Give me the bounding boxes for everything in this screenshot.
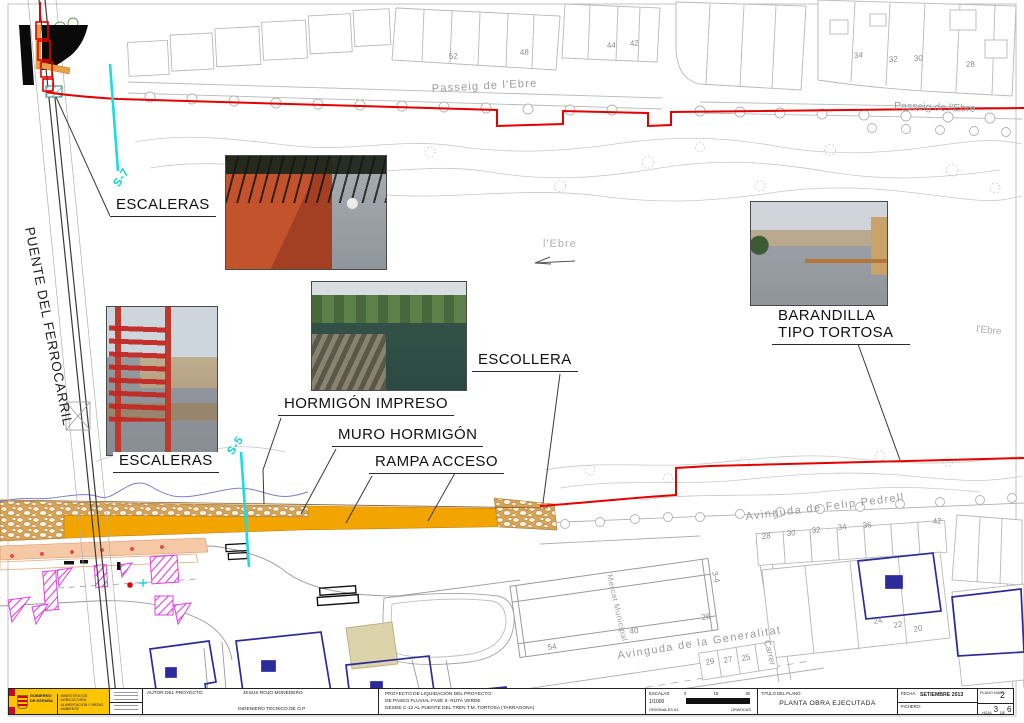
spain-flag-icon <box>9 689 15 714</box>
escala-value: 1/1000 <box>649 699 664 705</box>
callout-escaleras-left: ESCALERAS <box>113 452 219 473</box>
gobierno-logo: GOBIERNO DE ESPAÑA MINISTERIO DE AGRICUL… <box>9 689 109 714</box>
river-label-right: l'Ebre <box>976 324 1003 338</box>
photo-escaleras-top <box>225 155 387 270</box>
fichero-label: FICHERO: <box>901 704 921 709</box>
house-number: 52 <box>449 52 459 61</box>
photo-paseo-barandilla <box>750 201 888 306</box>
escalas-cell: ESCALAS: 1/1000 ORIGINALES A3 0 15 30 GR… <box>645 689 757 714</box>
cell-divider <box>110 702 142 703</box>
fecha-label: FECHA: <box>901 691 916 696</box>
house-number: 28 <box>761 531 771 541</box>
escalas-label: ESCALAS: <box>649 691 670 696</box>
title-block: GOBIERNO DE ESPAÑA MINISTERIO DE AGRICUL… <box>8 688 1014 715</box>
fecha-value: SETIEMBRE 2013 <box>920 692 963 698</box>
hoja-row: HOJA 3 DE 6 <box>978 704 1013 714</box>
spain-coat-of-arms-icon <box>17 695 28 709</box>
autor-title: INGENIERO TÉCNICO DE O.P. <box>238 707 306 712</box>
scale-tick: 15 <box>714 691 719 696</box>
buildings-top-right <box>676 0 1016 96</box>
fecha-cell: FECHA: SETIEMBRE 2013 FICHERO: <box>897 689 977 714</box>
house-number: 34 <box>837 522 847 532</box>
street-label-pedrell: Avinguda de Felip Pedrell <box>745 492 905 523</box>
house-number: 48 <box>520 48 530 57</box>
water-edge-contour <box>0 483 308 502</box>
house-number: 40 <box>629 626 640 636</box>
buildings-top-middle <box>392 4 660 70</box>
proyecto-line3: DESDE C-12 AL PUENTE DEL TREN T.M. TORTO… <box>385 705 645 712</box>
house-number: 28 <box>966 60 976 69</box>
callout-muro-hormigon: MURO HORMIGÓN <box>332 426 483 447</box>
fichero-row: FICHERO: <box>898 703 977 715</box>
buildings-top-left <box>126 9 391 77</box>
river-flow-arrow <box>535 257 575 264</box>
proyecto-line2: DE PASEO FLUVIAL FASE II- RUTA VERDE <box>385 698 645 705</box>
plano-cell: PLANO NÚM. 2 HOJA 3 DE 6 <box>977 689 1013 714</box>
plan-sheet: { "callouts": { "escaleras_top": "ESCALE… <box>0 0 1024 723</box>
river-label-center: l'Ebre <box>543 238 577 250</box>
house-number: 36 <box>862 520 872 530</box>
originales-label: ORIGINALES A3 <box>649 707 678 712</box>
house-number: 32 <box>811 525 821 535</box>
photo-escaleras-left <box>106 306 218 456</box>
callout-escollera: ESCOLLERA <box>472 351 578 372</box>
hoja-num: 3 <box>994 706 998 714</box>
fine-print-line <box>114 705 138 706</box>
autor-cell: AUTOR DEL PROYECTO: JESUS ROJO MONEDERO … <box>142 689 378 714</box>
house-number: 30 <box>914 54 924 63</box>
gobierno-text: GOBIERNO DE ESPAÑA <box>30 694 54 714</box>
house-number: 26 <box>701 612 712 622</box>
titulo-value: PLANTA OBRA EJECUTADA <box>758 700 897 707</box>
fecha-row: FECHA: SETIEMBRE 2013 <box>898 689 977 703</box>
de-label: DE <box>1000 711 1005 714</box>
fine-print-line <box>114 692 138 693</box>
fine-print-line <box>114 709 138 710</box>
house-number: 54 <box>547 642 558 652</box>
scale-tick: 30 <box>745 691 750 696</box>
direccion-general-cell <box>109 689 142 714</box>
callout-barandilla-line2: TIPO TORTOSA <box>778 324 893 341</box>
titulo-label: TITULO DEL PLANO: <box>761 691 802 696</box>
callout-rampa-acceso: RAMPA ACCESO <box>369 453 504 474</box>
callout-barandilla-line1: BARANDILLA <box>778 307 875 324</box>
graficas-label: GRAFICAS <box>731 707 751 712</box>
house-number: 42 <box>630 39 640 48</box>
fine-print-line <box>114 699 138 700</box>
fine-print-line <box>114 695 138 696</box>
callout-hormigon-impreso: HORMIGÓN IMPRESO <box>278 395 454 416</box>
titulo-cell: TITULO DEL PLANO: PLANTA OBRA EJECUTADA <box>757 689 897 714</box>
callout-escaleras-top: ESCALERAS <box>110 196 216 217</box>
plano-num-value: 2 <box>1000 690 1005 700</box>
scale-ticks: 0 15 30 <box>684 691 750 696</box>
ministerio-text: MINISTERIO DE AGRICULTURA, ALIMENTACIÓN … <box>57 694 108 714</box>
house-number: 44 <box>607 41 617 50</box>
callout-barandilla: BARANDILLATIPO TORTOSA <box>772 307 910 345</box>
proyecto-line1: PROYECTO DE LIQUIDACIÓN DEL PROYECTO: <box>385 691 645 698</box>
house-number: 32 <box>889 55 899 64</box>
house-number: 42 <box>932 516 942 526</box>
plano-num-row: PLANO NÚM. 2 <box>978 689 1013 704</box>
photo-escollera-rio <box>311 281 467 391</box>
river-bank-promenade <box>0 498 557 541</box>
proyecto-cell: PROYECTO DE LIQUIDACIÓN DEL PROYECTO: DE… <box>378 689 645 714</box>
autor-name: JESUS ROJO MONEDERO <box>243 691 303 696</box>
graphic-scale-bar <box>686 698 750 704</box>
puente-ferrocarril-label: PUENTE DEL FERROCARRIL <box>22 226 75 428</box>
house-number: 30 <box>786 528 796 538</box>
autor-label: AUTOR DEL PROYECTO: <box>147 691 204 696</box>
hoja-label: HOJA <box>982 711 992 714</box>
house-number: 34 <box>854 51 864 60</box>
scale-tick: 0 <box>684 691 686 696</box>
de-num: 6 <box>1007 706 1011 714</box>
